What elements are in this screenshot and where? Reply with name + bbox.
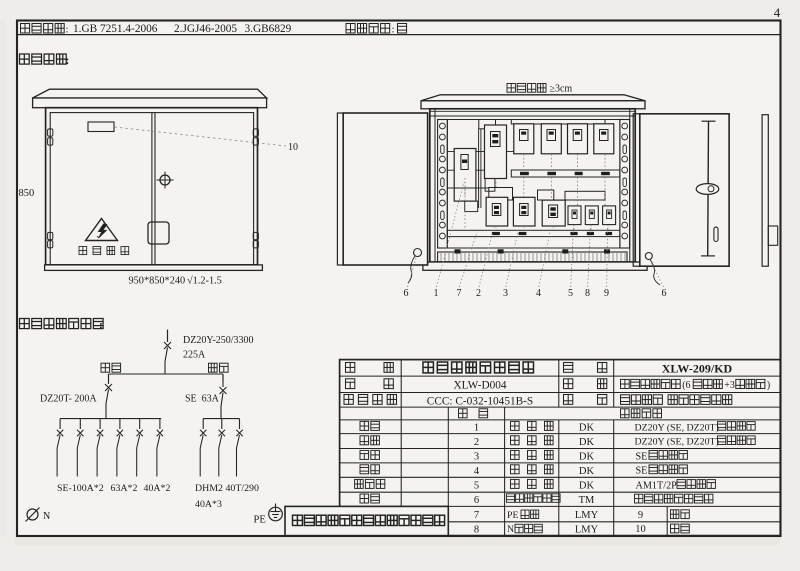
svg-text:SE: SE xyxy=(636,466,648,477)
svg-text:63A*2: 63A*2 xyxy=(111,483,138,494)
svg-text::: : xyxy=(66,55,70,67)
svg-text:4: 4 xyxy=(474,466,480,477)
svg-text:40A*3: 40A*3 xyxy=(195,499,222,510)
svg-text::: : xyxy=(99,320,103,332)
svg-text:6: 6 xyxy=(662,288,667,299)
svg-text:N: N xyxy=(507,524,514,535)
svg-text:AM1T/2P: AM1T/2P xyxy=(636,480,678,491)
svg-text:√1.2-1.5: √1.2-1.5 xyxy=(187,275,222,287)
svg-text:2: 2 xyxy=(476,288,481,299)
svg-text:DK: DK xyxy=(579,437,595,448)
svg-text:7: 7 xyxy=(457,288,462,299)
svg-text:LMY: LMY xyxy=(575,510,599,521)
svg-text:1.GB 7251.4-2006: 1.GB 7251.4-2006 xyxy=(73,23,158,35)
svg-text:8: 8 xyxy=(474,524,479,535)
svg-text:DZ20Y (SE, DZ20T): DZ20Y (SE, DZ20T) xyxy=(635,422,719,433)
svg-text:9: 9 xyxy=(604,288,609,299)
svg-text:10: 10 xyxy=(288,142,298,153)
svg-text:2: 2 xyxy=(474,437,479,448)
svg-text:DK: DK xyxy=(579,480,595,491)
svg-text:1: 1 xyxy=(474,422,479,433)
svg-text:N: N xyxy=(43,511,50,522)
svg-text:DK: DK xyxy=(579,451,595,462)
svg-text:DZ20T- 200A: DZ20T- 200A xyxy=(40,394,97,405)
svg-text:DK: DK xyxy=(579,422,595,433)
svg-text:2.JGJ46-2005: 2.JGJ46-2005 xyxy=(174,23,237,35)
svg-text:XLW-D004: XLW-D004 xyxy=(453,380,506,392)
svg-text:1: 1 xyxy=(434,288,439,299)
svg-text:950*850*240: 950*850*240 xyxy=(129,276,186,287)
svg-text::: : xyxy=(392,24,395,36)
svg-text:DHM2 40T/290: DHM2 40T/290 xyxy=(195,483,259,494)
svg-text:10: 10 xyxy=(635,524,646,535)
svg-text:3: 3 xyxy=(474,451,479,462)
svg-text::: : xyxy=(66,24,69,36)
svg-text:DK: DK xyxy=(579,466,595,477)
svg-text:850: 850 xyxy=(19,188,35,199)
svg-text:XLW-209/KD: XLW-209/KD xyxy=(662,361,733,375)
svg-text:3: 3 xyxy=(503,288,508,299)
svg-text:40A*2: 40A*2 xyxy=(144,483,171,494)
svg-text:8: 8 xyxy=(585,288,590,299)
svg-text:6: 6 xyxy=(404,288,409,299)
svg-text:5: 5 xyxy=(568,288,573,299)
svg-text:225A: 225A xyxy=(183,350,206,361)
svg-text:4: 4 xyxy=(774,5,781,20)
svg-text:LMY: LMY xyxy=(575,524,599,535)
svg-text:PE: PE xyxy=(254,515,266,526)
svg-text:+3: +3 xyxy=(724,380,735,391)
svg-text:): ) xyxy=(767,380,770,391)
svg-text:7: 7 xyxy=(474,510,479,521)
svg-text:9: 9 xyxy=(638,510,643,521)
svg-text:DZ20Y-250/3300: DZ20Y-250/3300 xyxy=(183,335,254,346)
svg-text:DZ20Y (SE, DZ20T): DZ20Y (SE, DZ20T) xyxy=(635,437,719,448)
svg-text:(6: (6 xyxy=(682,380,690,391)
svg-text:≥3cm: ≥3cm xyxy=(550,84,573,95)
svg-text:SE 63A: SE 63A xyxy=(185,394,220,405)
svg-text:PE: PE xyxy=(507,510,518,521)
svg-text:4: 4 xyxy=(536,288,541,299)
svg-text:SE: SE xyxy=(636,451,648,462)
svg-text:3.GB6829: 3.GB6829 xyxy=(245,23,292,35)
svg-text:TM: TM xyxy=(579,495,595,506)
svg-text:6: 6 xyxy=(474,495,479,506)
svg-text:5: 5 xyxy=(474,480,479,491)
svg-text:SE-100A*2: SE-100A*2 xyxy=(57,483,104,494)
svg-text:CCC: C-032-10451B-S: CCC: C-032-10451B-S xyxy=(427,395,533,407)
